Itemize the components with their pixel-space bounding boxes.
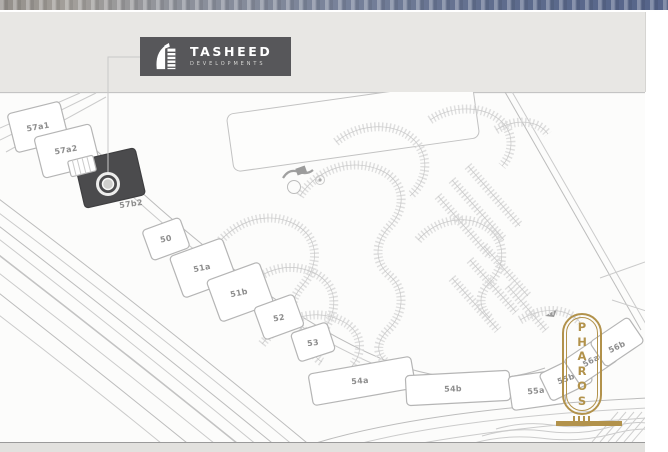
cartouche-letter: H bbox=[577, 335, 587, 350]
logo-name: TASHEED bbox=[190, 46, 272, 59]
map-linework bbox=[0, 92, 645, 443]
building-icon bbox=[153, 42, 181, 72]
cartouche-base-bar bbox=[556, 421, 622, 426]
photo-edge-strip bbox=[0, 0, 668, 10]
header-panel bbox=[0, 12, 646, 92]
cartouche-letters: PHAROS bbox=[562, 320, 602, 408]
site-map bbox=[0, 92, 645, 443]
cartouche-letter: R bbox=[578, 364, 587, 379]
cartouche-letter: S bbox=[578, 394, 586, 409]
bottom-strip bbox=[0, 442, 645, 452]
cartouche-letter: P bbox=[578, 320, 586, 335]
plot-54a bbox=[308, 356, 416, 406]
cartouche-letter: O bbox=[577, 379, 587, 394]
logo-tagline: DEVELOPMENTS bbox=[190, 62, 272, 67]
pharos-watermark: PHAROS bbox=[562, 313, 604, 425]
page: 57a157a257b25051a51b525354a54b55a55b56a5… bbox=[0, 0, 668, 452]
plot-54b bbox=[405, 370, 510, 405]
cartouche-letter: A bbox=[578, 349, 587, 364]
logo-badge: TASHEED DEVELOPMENTS bbox=[140, 37, 291, 76]
